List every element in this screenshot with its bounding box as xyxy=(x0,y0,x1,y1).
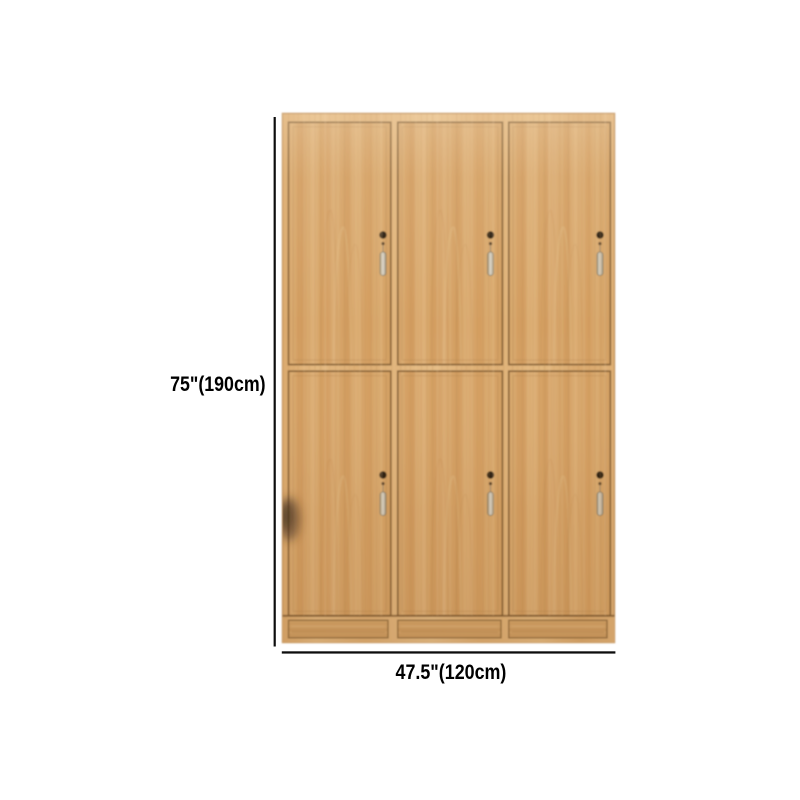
svg-text:47.5"(120cm): 47.5"(120cm) xyxy=(396,660,507,684)
svg-text:75"(190cm): 75"(190cm) xyxy=(170,373,266,396)
